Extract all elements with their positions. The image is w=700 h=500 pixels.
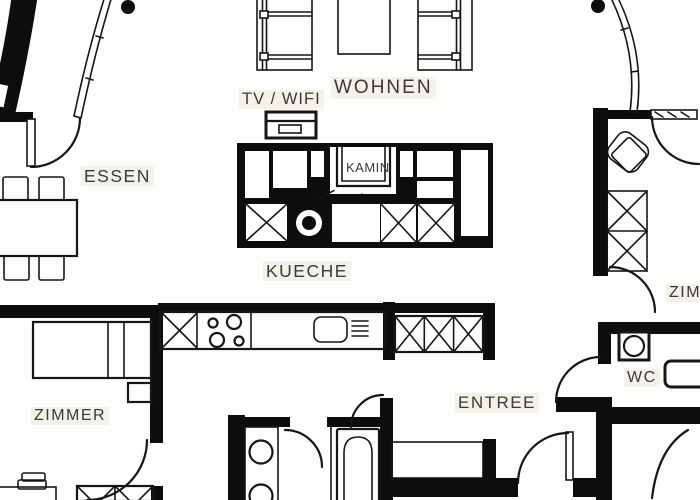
room-label-wohnen: WOHNEN xyxy=(331,77,436,99)
door-zimmer-left xyxy=(87,440,147,500)
room-label-tv-wifi: TV / WIFI xyxy=(239,90,324,109)
room-label-kueche: KUECHE xyxy=(263,261,351,281)
desk xyxy=(0,473,56,500)
sofa-left xyxy=(257,0,312,70)
bathtub xyxy=(337,429,379,500)
bed xyxy=(33,322,151,378)
curved-wall-top-left xyxy=(0,0,38,119)
wardrobe-right xyxy=(607,191,647,271)
entree-wardrobe xyxy=(395,316,483,352)
room-label-wc: WC xyxy=(624,369,660,387)
counter-cabinet-x xyxy=(162,313,197,348)
armchair xyxy=(604,128,652,175)
tv-cabinet xyxy=(266,112,316,138)
curved-window-right xyxy=(610,0,639,112)
door-bathroom xyxy=(285,430,322,467)
room-label-zimmer-left: ZIMMER xyxy=(31,407,109,425)
door-zimmer-right xyxy=(610,267,655,312)
kitchen-island xyxy=(237,143,493,248)
bidet-bowl xyxy=(250,485,273,500)
coffee-table xyxy=(338,0,390,54)
bathroom-fixtures xyxy=(245,427,379,500)
nightstand xyxy=(128,383,151,402)
door-wc xyxy=(556,357,600,402)
dining-chair xyxy=(39,177,64,200)
room-label-zimmer-right: ZIMMER xyxy=(666,284,700,302)
wardrobe-left xyxy=(77,486,153,500)
column-dot-right xyxy=(591,0,605,13)
dining-chair xyxy=(3,177,28,200)
toilet-bowl xyxy=(250,441,273,464)
kitchen-counter xyxy=(160,312,385,349)
dining-chair xyxy=(4,256,29,280)
sofa-right xyxy=(418,0,472,70)
column-dot-left xyxy=(121,0,135,14)
toilet xyxy=(665,361,700,387)
floor-plan: ESSEN WOHNEN TV / WIFI KAMIN KUECHE ZIMM… xyxy=(0,0,700,500)
door-balcony-right xyxy=(651,110,699,164)
dining-table xyxy=(0,200,77,256)
door-entrance xyxy=(518,432,573,483)
dining-chair xyxy=(39,256,64,280)
room-label-entree: ENTREE xyxy=(455,393,539,413)
stove xyxy=(209,315,244,347)
dining-set xyxy=(0,177,77,280)
curved-window-left xyxy=(74,0,112,118)
room-label-kamin: KAMIN xyxy=(343,161,393,176)
kitchen-sink xyxy=(314,317,368,342)
room-label-essen: ESSEN xyxy=(81,166,154,186)
door-essen xyxy=(27,118,80,167)
door-bottom-right xyxy=(652,430,688,498)
entree-sideboard xyxy=(392,439,496,480)
